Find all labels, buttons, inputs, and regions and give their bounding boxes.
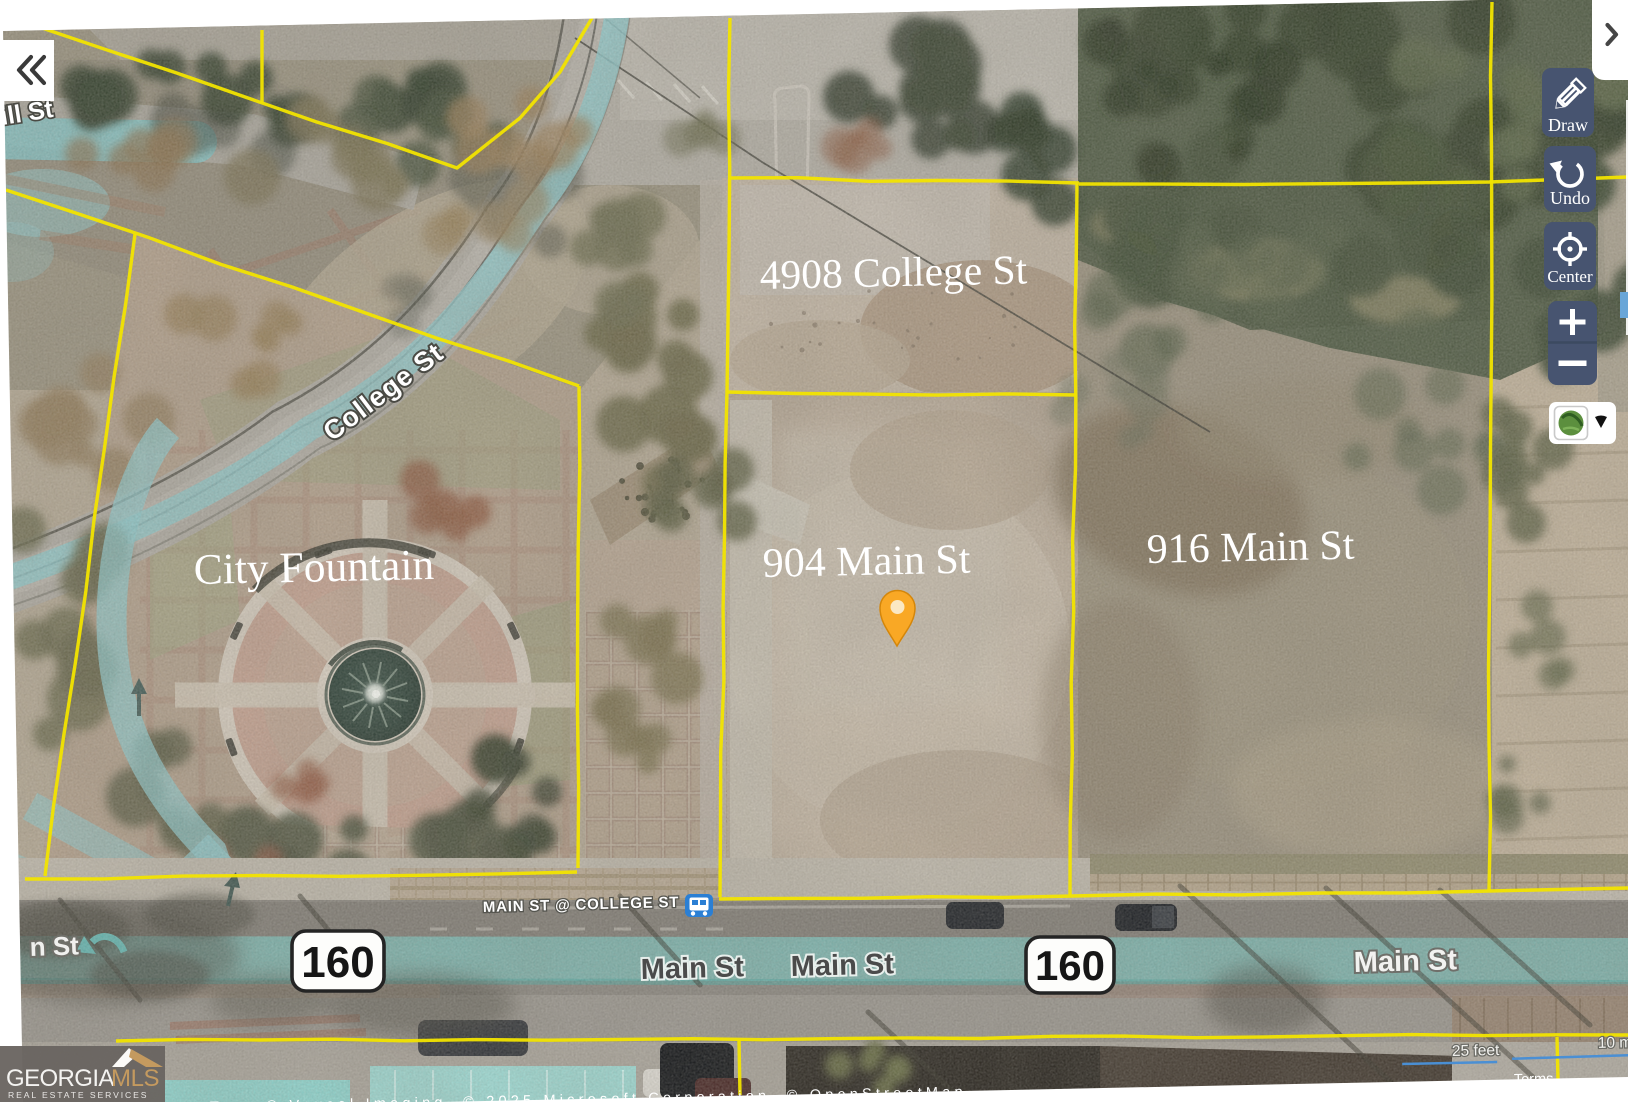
svg-text:Main St: Main St [790, 948, 894, 983]
svg-text:MLS: MLS [111, 1065, 159, 1092]
svg-text:Center: Center [1547, 267, 1593, 286]
svg-text:160: 160 [301, 938, 374, 987]
svg-text:Main St: Main St [640, 951, 744, 986]
svg-text:160: 160 [1035, 942, 1105, 989]
svg-text:REAL ESTATE SERVICES: REAL ESTATE SERVICES [8, 1090, 148, 1100]
svg-text:904 Main St: 904 Main St [762, 537, 971, 587]
svg-text:n St: n St [29, 930, 79, 962]
svg-text:Undo: Undo [1550, 188, 1590, 208]
svg-text:25 feet: 25 feet [1452, 1042, 1500, 1060]
svg-text:Main St: Main St [1353, 944, 1457, 979]
svg-text:916 Main St: 916 Main St [1146, 523, 1355, 573]
svg-text:Draw: Draw [1548, 115, 1588, 135]
svg-text:GEORGIA: GEORGIA [6, 1065, 114, 1092]
svg-text:City Fountain: City Fountain [193, 541, 435, 594]
svg-text:4908 College St: 4908 College St [759, 246, 1028, 298]
svg-text:10 m: 10 m [1598, 1034, 1628, 1052]
